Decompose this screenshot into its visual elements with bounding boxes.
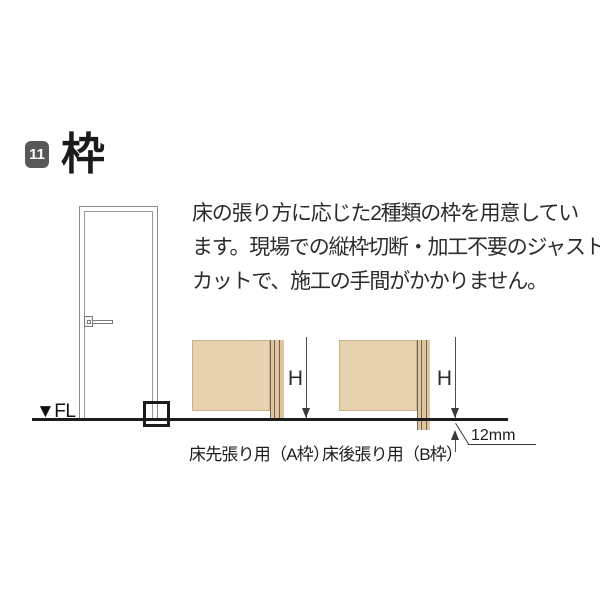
frame-b-arrow-up-icon bbox=[451, 430, 459, 440]
section-number-badge: 11 bbox=[25, 141, 49, 168]
door-handle-hub-icon bbox=[87, 320, 91, 324]
detail-callout-box bbox=[143, 401, 170, 427]
frame-b-jamb bbox=[417, 340, 430, 430]
frame-a-jamb-line bbox=[274, 340, 275, 419]
frame-b-jamb-line bbox=[417, 340, 418, 430]
door-handle-lever-icon bbox=[92, 320, 113, 324]
description-paragraph: 床の張り方に応じた2種類の枠を用意してい ます。現場での縦枠切断・加工不要のジャ… bbox=[192, 197, 600, 299]
frame-b-wall-section bbox=[339, 340, 417, 411]
floor-line bbox=[32, 418, 508, 421]
frame-a-height-label: H bbox=[281, 368, 303, 389]
frame-b-jamb-line bbox=[421, 340, 422, 430]
description-line-3: カットで、施工の手間がかかりません。 bbox=[192, 265, 600, 299]
frame-b-height-dimension-line bbox=[455, 337, 456, 418]
page-title: 枠 bbox=[61, 133, 105, 177]
frame-a-arrow-down-icon bbox=[302, 408, 310, 418]
frame-a-wall-section bbox=[192, 340, 270, 411]
offset-dimension-label: 12mm bbox=[471, 427, 515, 445]
frame-b-jamb-line bbox=[426, 340, 427, 430]
description-line-1: 床の張り方に応じた2種類の枠を用意してい bbox=[192, 197, 600, 231]
frame-b-arrow-down-icon bbox=[451, 408, 459, 418]
frame-a-caption: 床先張り用（A枠） bbox=[189, 440, 329, 465]
floor-level-label: ▼FL bbox=[36, 401, 75, 423]
frame-a-height-dimension-line bbox=[306, 337, 307, 418]
description-line-2: ます。現場での縦枠切断・加工不要のジャスト bbox=[192, 231, 600, 265]
frame-b-caption: 床後張り用（B枠） bbox=[322, 440, 462, 465]
frame-a-jamb-line bbox=[279, 340, 280, 419]
frame-b-height-label: H bbox=[430, 368, 452, 389]
frame-a-jamb-line bbox=[270, 340, 271, 419]
door-panel bbox=[84, 211, 153, 419]
